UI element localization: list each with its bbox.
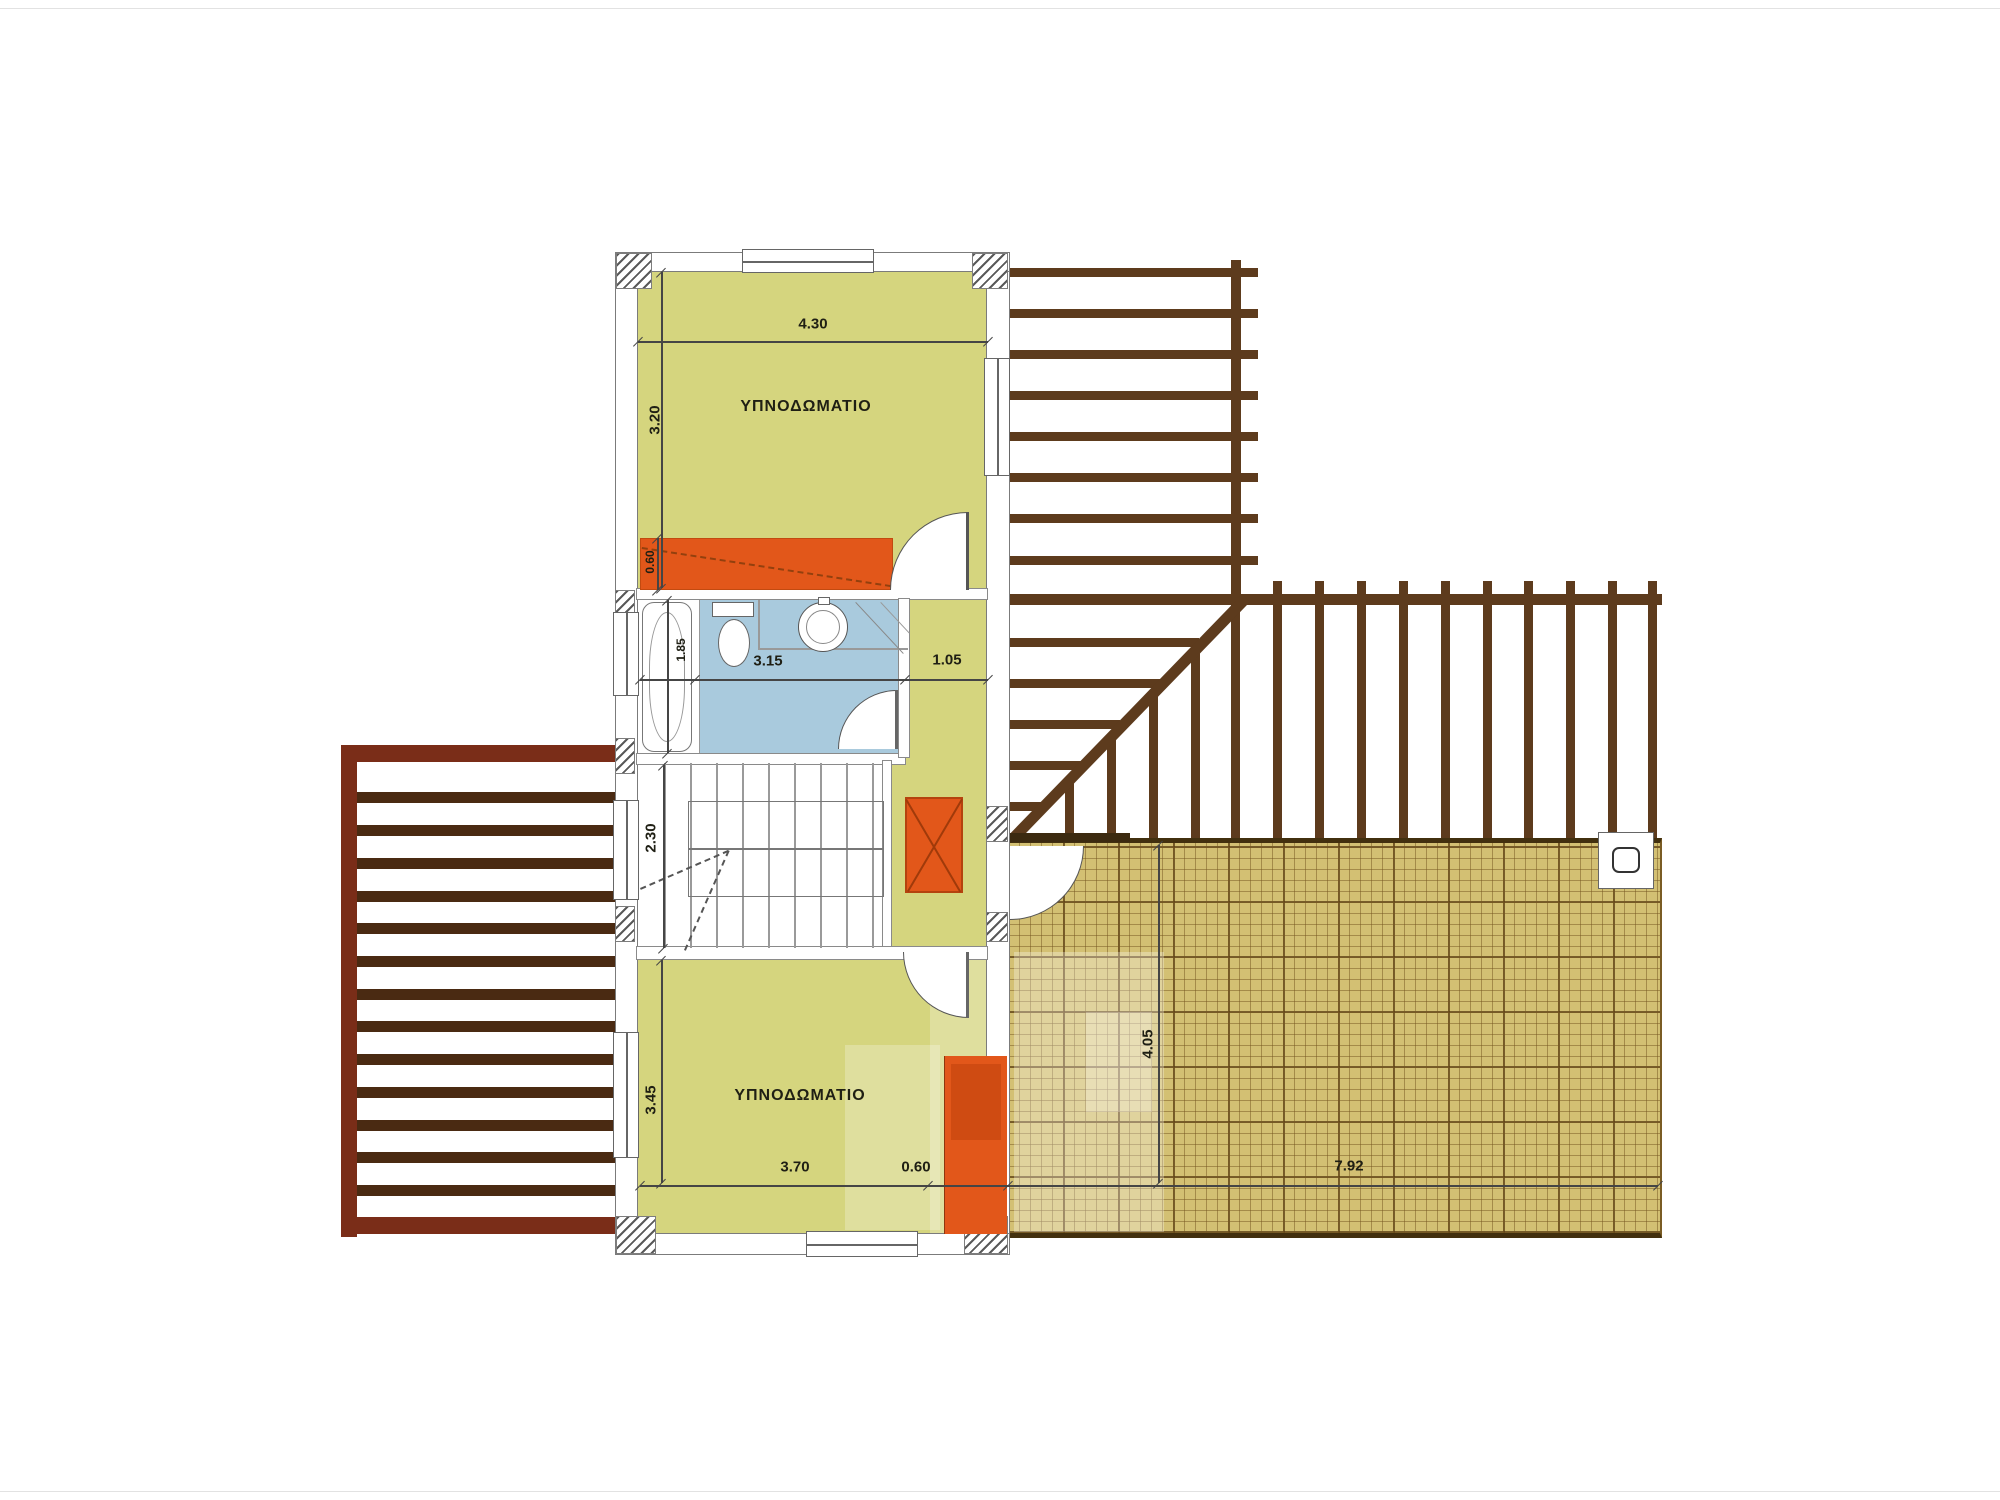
pergola-joist: [1010, 679, 1160, 688]
dim-bath-depth: 1.85: [675, 638, 687, 661]
glare-patch: [1086, 1012, 1152, 1112]
pergola-joist: [1483, 581, 1492, 838]
pergola-joist: [1273, 581, 1282, 838]
balcony-frame-bottom: [341, 1217, 622, 1234]
dimension-line: [667, 600, 669, 753]
pergola-joist: [1010, 514, 1258, 523]
dim-terrace-width: 7.92: [1334, 1159, 1363, 1174]
balcony-joist: [357, 891, 618, 902]
pergola-joist: [1524, 581, 1533, 838]
dimension-line: [661, 960, 663, 1183]
door-leaf: [966, 952, 969, 1018]
wall-hatch-block: [616, 1216, 656, 1254]
pergola-joist: [1566, 581, 1575, 838]
wall-interior: [636, 753, 906, 765]
dimension-line: [1158, 845, 1160, 1183]
dim-bedroom-bottom-width: 3.70: [780, 1160, 809, 1175]
balcony-joist: [357, 792, 618, 803]
pergola-joist: [1010, 473, 1258, 482]
pergola-joist: [1191, 649, 1200, 838]
wall-hatch-block: [615, 906, 635, 942]
glare-patch: [845, 1045, 940, 1230]
room-label-bedroom-bottom: ΥΠΝΟΔΩΜΑΤΙΟ: [734, 1088, 865, 1104]
dimension-line: [657, 538, 659, 590]
dimension-line: [663, 765, 665, 948]
pergola-joist: [1010, 391, 1258, 400]
window-pane-line: [626, 612, 628, 696]
pergola-joist: [1399, 581, 1408, 838]
balcony-joist: [357, 825, 618, 836]
pergola-joist: [1441, 581, 1450, 838]
sink-faucet: [818, 597, 830, 605]
counter-line: [758, 600, 760, 650]
pergola-joist: [1010, 720, 1120, 729]
window-pane-line: [626, 1032, 628, 1158]
toilet-bowl: [718, 619, 750, 667]
pergola-joist: [1357, 581, 1366, 838]
dim-wardrobe-top-depth: 0.60: [644, 550, 656, 573]
balcony-joist: [357, 858, 618, 869]
wardrobe-top: [640, 538, 893, 590]
dim-bedroom-bottom-depth: 3.45: [644, 1085, 659, 1114]
pergola-joist: [1010, 268, 1258, 277]
window-pane-line: [997, 358, 999, 476]
balcony-joist: [357, 1054, 618, 1065]
pergola-joist: [1107, 736, 1116, 838]
toilet-tank: [712, 602, 754, 617]
dimension-line: [638, 341, 988, 343]
pergola-joist: [1010, 432, 1258, 441]
dimension-line: [640, 1185, 1008, 1187]
pergola-joist: [1648, 581, 1657, 838]
dim-wardrobe-bottom-width: 0.60: [901, 1160, 930, 1175]
wall-hatch-block: [986, 806, 1008, 842]
dim-bedroom-top-depth: 3.20: [648, 405, 663, 434]
balcony-joist: [357, 956, 618, 967]
pergola-joist: [1149, 692, 1158, 838]
room-label-bedroom-top: ΥΠΝΟΔΩΜΑΤΙΟ: [740, 399, 871, 415]
balcony-frame-top: [341, 745, 622, 762]
wall-hatch-block: [986, 912, 1008, 942]
dimension-line: [1008, 1185, 1658, 1187]
dim-stair-depth: 2.30: [644, 823, 659, 852]
balcony-joist: [357, 1087, 618, 1098]
window-pane-line: [626, 800, 628, 900]
balcony-frame-left: [341, 745, 357, 1237]
page-top-rule: [0, 8, 2000, 9]
balcony-joist: [357, 1185, 618, 1196]
window-pane-line: [742, 261, 874, 263]
pergola-beam: [1010, 594, 1662, 605]
balcony-joist: [357, 1021, 618, 1032]
dim-bath-width: 3.15: [753, 654, 782, 669]
pergola-joist: [1010, 350, 1258, 359]
light-fixture-icon: [1612, 847, 1640, 873]
pergola-joist: [1010, 761, 1081, 770]
wardrobe-bottom-shelf: [951, 1064, 1001, 1140]
terrace-threshold: [1008, 833, 1130, 842]
pergola-rail: [1231, 260, 1241, 605]
dim-bedroom-top-width: 4.30: [798, 317, 827, 332]
floor-plan-canvas: ΥΠΝΟΔΩΜΑΤΙΟΥΠΝΟΔΩΜΑΤΙΟ4.303.200.601.853.…: [0, 0, 2000, 1500]
stair-flight-midline: [688, 848, 884, 850]
balcony-joist: [357, 1120, 618, 1131]
pergola-joist: [1010, 638, 1199, 647]
pergola-joist: [1608, 581, 1617, 838]
page-bottom-rule: [0, 1491, 2000, 1492]
wall-hatch-block: [615, 738, 635, 774]
balcony-joist: [357, 1152, 618, 1163]
door-leaf: [966, 512, 969, 590]
dim-terrace-depth: 4.05: [1141, 1029, 1156, 1058]
door-leaf: [895, 690, 898, 749]
pergola-joist: [1315, 581, 1324, 838]
dim-hall-width: 1.05: [932, 653, 961, 668]
pergola-joist: [1010, 556, 1258, 565]
wall-hatch-block: [972, 253, 1008, 289]
pergola-joist: [1010, 309, 1258, 318]
balcony-joist: [357, 989, 618, 1000]
wall-hatch-block: [616, 253, 652, 289]
window-pane-line: [806, 1244, 918, 1246]
balcony-joist: [357, 923, 618, 934]
sink-basin: [806, 610, 840, 644]
